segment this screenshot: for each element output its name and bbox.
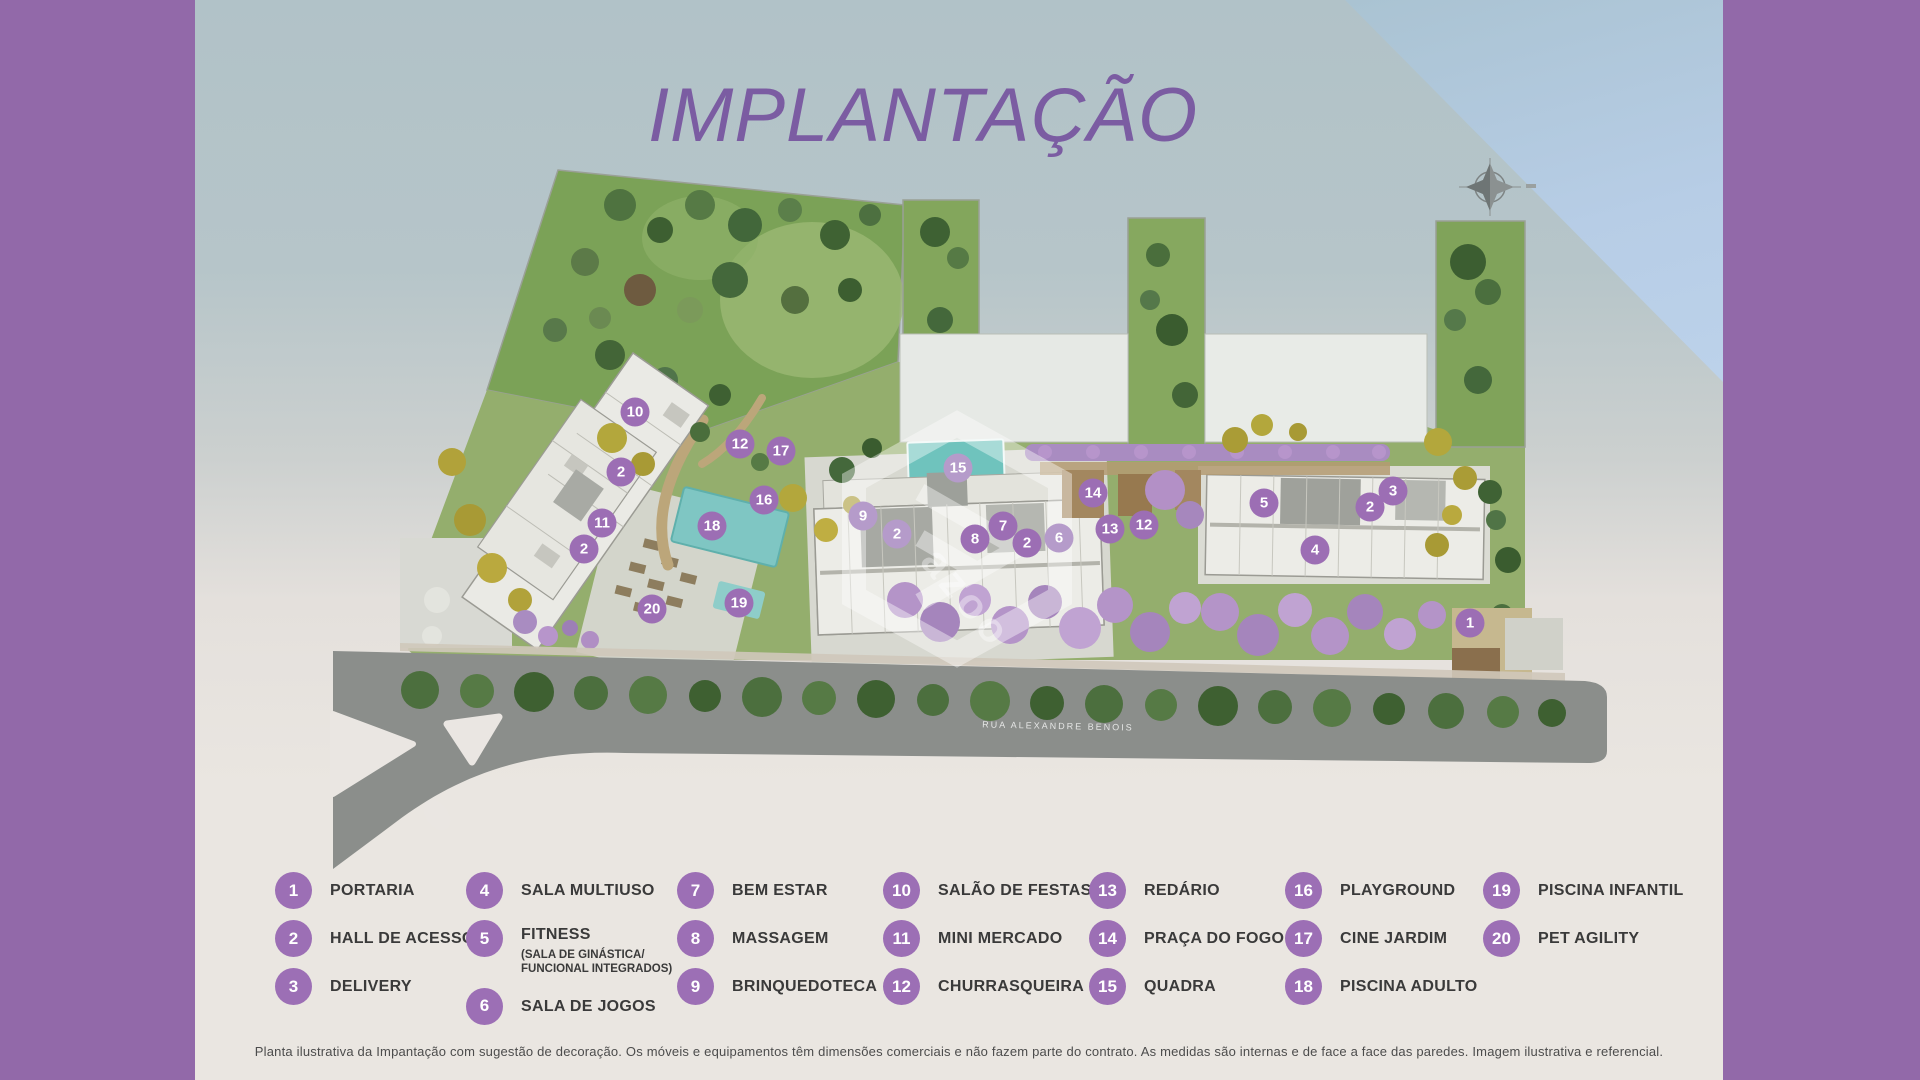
map-marker-5: 5 (1250, 489, 1279, 518)
legend-label: HALL DE ACESSO (330, 920, 475, 957)
legend-label: SALA DE JOGOS (521, 988, 656, 1025)
legend-number-badge: 17 (1285, 920, 1322, 957)
map-marker-8: 8 (961, 525, 990, 554)
legend-item-19: 19PISCINA INFANTIL (1483, 872, 1684, 909)
legend-item-16: 16PLAYGROUND (1285, 872, 1478, 909)
legend-item-15: 15QUADRA (1089, 968, 1284, 1005)
legend-label: FITNESS (521, 920, 696, 950)
map-marker-2: 2 (1013, 529, 1042, 558)
legend-item-11: 11MINI MERCADO (883, 920, 1092, 957)
legend-label: BEM ESTAR (732, 872, 828, 909)
legend-number-badge: 18 (1285, 968, 1322, 1005)
legend-column-2: 4SALA MULTIUSO5FITNESS(SALA DE GINÁSTICA… (466, 872, 696, 1025)
legend-number-badge: 12 (883, 968, 920, 1005)
legend-item-18: 18PISCINA ADULTO (1285, 968, 1478, 1005)
legend-text: CINE JARDIM (1340, 920, 1447, 957)
map-marker-11: 11 (588, 509, 617, 538)
map-marker-12: 12 (1130, 511, 1159, 540)
legend-item-12: 12CHURRASQUEIRA (883, 968, 1092, 1005)
legend-label: PISCINA ADULTO (1340, 968, 1478, 1005)
legend-number-badge: 13 (1089, 872, 1126, 909)
legend-label: PET AGILITY (1538, 920, 1639, 957)
disclaimer-text: Planta ilustrativa da Impantação com sug… (195, 1044, 1723, 1059)
legend: 1PORTARIA2HALL DE ACESSO3DELIVERY4SALA M… (0, 872, 1920, 1057)
legend-number-badge: 15 (1089, 968, 1126, 1005)
legend-item-20: 20PET AGILITY (1483, 920, 1684, 957)
legend-number-badge: 7 (677, 872, 714, 909)
map-marker-2: 2 (607, 458, 636, 487)
legend-label: SALA MULTIUSO (521, 872, 655, 909)
legend-number-badge: 5 (466, 920, 503, 957)
legend-text: PORTARIA (330, 872, 415, 909)
map-marker-13: 13 (1096, 515, 1125, 544)
map-marker-12: 12 (726, 430, 755, 459)
legend-item-3: 3DELIVERY (275, 968, 475, 1005)
map-marker-2: 2 (570, 535, 599, 564)
legend-text: CHURRASQUEIRA (938, 968, 1084, 1005)
legend-text: SALA MULTIUSO (521, 872, 655, 909)
legend-number-badge: 16 (1285, 872, 1322, 909)
legend-text: PISCINA INFANTIL (1538, 872, 1684, 909)
legend-item-14: 14PRAÇA DO FOGO (1089, 920, 1284, 957)
legend-column-1: 1PORTARIA2HALL DE ACESSO3DELIVERY (275, 872, 475, 1005)
legend-label: REDÁRIO (1144, 872, 1220, 909)
map-marker-18: 18 (698, 512, 727, 541)
legend-text: PET AGILITY (1538, 920, 1639, 957)
legend-number-badge: 4 (466, 872, 503, 909)
legend-text: PLAYGROUND (1340, 872, 1455, 909)
legend-label: CHURRASQUEIRA (938, 968, 1084, 1005)
legend-item-9: 9BRINQUEDOTECA (677, 968, 877, 1005)
legend-label: PISCINA INFANTIL (1538, 872, 1684, 909)
legend-column-6: 16PLAYGROUND17CINE JARDIM18PISCINA ADULT… (1285, 872, 1478, 1005)
map-marker-15: 15 (944, 454, 973, 483)
legend-column-5: 13REDÁRIO14PRAÇA DO FOGO15QUADRA (1089, 872, 1284, 1005)
legend-label: QUADRA (1144, 968, 1216, 1005)
legend-item-5: 5FITNESS(SALA DE GINÁSTICA/ FUNCIONAL IN… (466, 920, 696, 977)
legend-label: PORTARIA (330, 872, 415, 909)
legend-label: MASSAGEM (732, 920, 829, 957)
legend-number-badge: 3 (275, 968, 312, 1005)
legend-number-badge: 6 (466, 988, 503, 1025)
legend-item-8: 8MASSAGEM (677, 920, 877, 957)
map-marker-4: 4 (1301, 536, 1330, 565)
legend-text: MINI MERCADO (938, 920, 1062, 957)
legend-number-badge: 11 (883, 920, 920, 957)
legend-label: CINE JARDIM (1340, 920, 1447, 957)
legend-item-13: 13REDÁRIO (1089, 872, 1284, 909)
legend-number-badge: 20 (1483, 920, 1520, 957)
map-marker-20: 20 (638, 595, 667, 624)
legend-text: HALL DE ACESSO (330, 920, 475, 957)
legend-item-4: 4SALA MULTIUSO (466, 872, 696, 909)
legend-item-6: 6SALA DE JOGOS (466, 988, 696, 1025)
legend-column-4: 10SALÃO DE FESTAS11MINI MERCADO12CHURRAS… (883, 872, 1092, 1005)
map-marker-1: 1 (1456, 609, 1485, 638)
legend-column-3: 7BEM ESTAR8MASSAGEM9BRINQUEDOTECA (677, 872, 877, 1005)
legend-item-17: 17CINE JARDIM (1285, 920, 1478, 957)
map-marker-3: 3 (1379, 477, 1408, 506)
legend-item-2: 2HALL DE ACESSO (275, 920, 475, 957)
legend-column-7: 19PISCINA INFANTIL20PET AGILITY (1483, 872, 1684, 957)
legend-text: SALÃO DE FESTAS (938, 872, 1092, 909)
white-field-right (1205, 334, 1427, 442)
legend-item-10: 10SALÃO DE FESTAS (883, 872, 1092, 909)
legend-text: FITNESS(SALA DE GINÁSTICA/ FUNCIONAL INT… (521, 920, 696, 977)
legend-label: BRINQUEDOTECA (732, 968, 877, 1005)
legend-number-badge: 8 (677, 920, 714, 957)
legend-text: MASSAGEM (732, 920, 829, 957)
legend-text: BRINQUEDOTECA (732, 968, 877, 1005)
implantacao-slide: IMPLANTAÇÃO (0, 0, 1920, 1080)
legend-label: MINI MERCADO (938, 920, 1062, 957)
legend-number-badge: 10 (883, 872, 920, 909)
legend-item-7: 7BEM ESTAR (677, 872, 877, 909)
map-marker-16: 16 (750, 486, 779, 515)
legend-text: REDÁRIO (1144, 872, 1220, 909)
legend-sublabel: (SALA DE GINÁSTICA/ FUNCIONAL INTEGRADOS… (521, 948, 696, 977)
legend-text: PISCINA ADULTO (1340, 968, 1478, 1005)
legend-text: QUADRA (1144, 968, 1216, 1005)
legend-number-badge: 19 (1483, 872, 1520, 909)
legend-number-badge: 1 (275, 872, 312, 909)
map-marker-6: 6 (1045, 524, 1074, 553)
legend-label: DELIVERY (330, 968, 412, 1005)
legend-label: SALÃO DE FESTAS (938, 872, 1092, 909)
legend-text: SALA DE JOGOS (521, 988, 656, 1025)
legend-number-badge: 14 (1089, 920, 1126, 957)
building-right (1205, 475, 1485, 580)
map-marker-14: 14 (1079, 479, 1108, 508)
map-marker-19: 19 (725, 589, 754, 618)
map-marker-17: 17 (767, 437, 796, 466)
legend-text: PRAÇA DO FOGO (1144, 920, 1284, 957)
map-marker-9: 9 (849, 502, 878, 531)
legend-number-badge: 2 (275, 920, 312, 957)
legend-label: PLAYGROUND (1340, 872, 1455, 909)
legend-text: BEM ESTAR (732, 872, 828, 909)
legend-number-badge: 9 (677, 968, 714, 1005)
legend-label: PRAÇA DO FOGO (1144, 920, 1284, 957)
map-marker-2: 2 (883, 520, 912, 549)
compass-icon (1459, 158, 1536, 216)
map-marker-10: 10 (621, 398, 650, 427)
legend-text: DELIVERY (330, 968, 412, 1005)
legend-item-1: 1PORTARIA (275, 872, 475, 909)
